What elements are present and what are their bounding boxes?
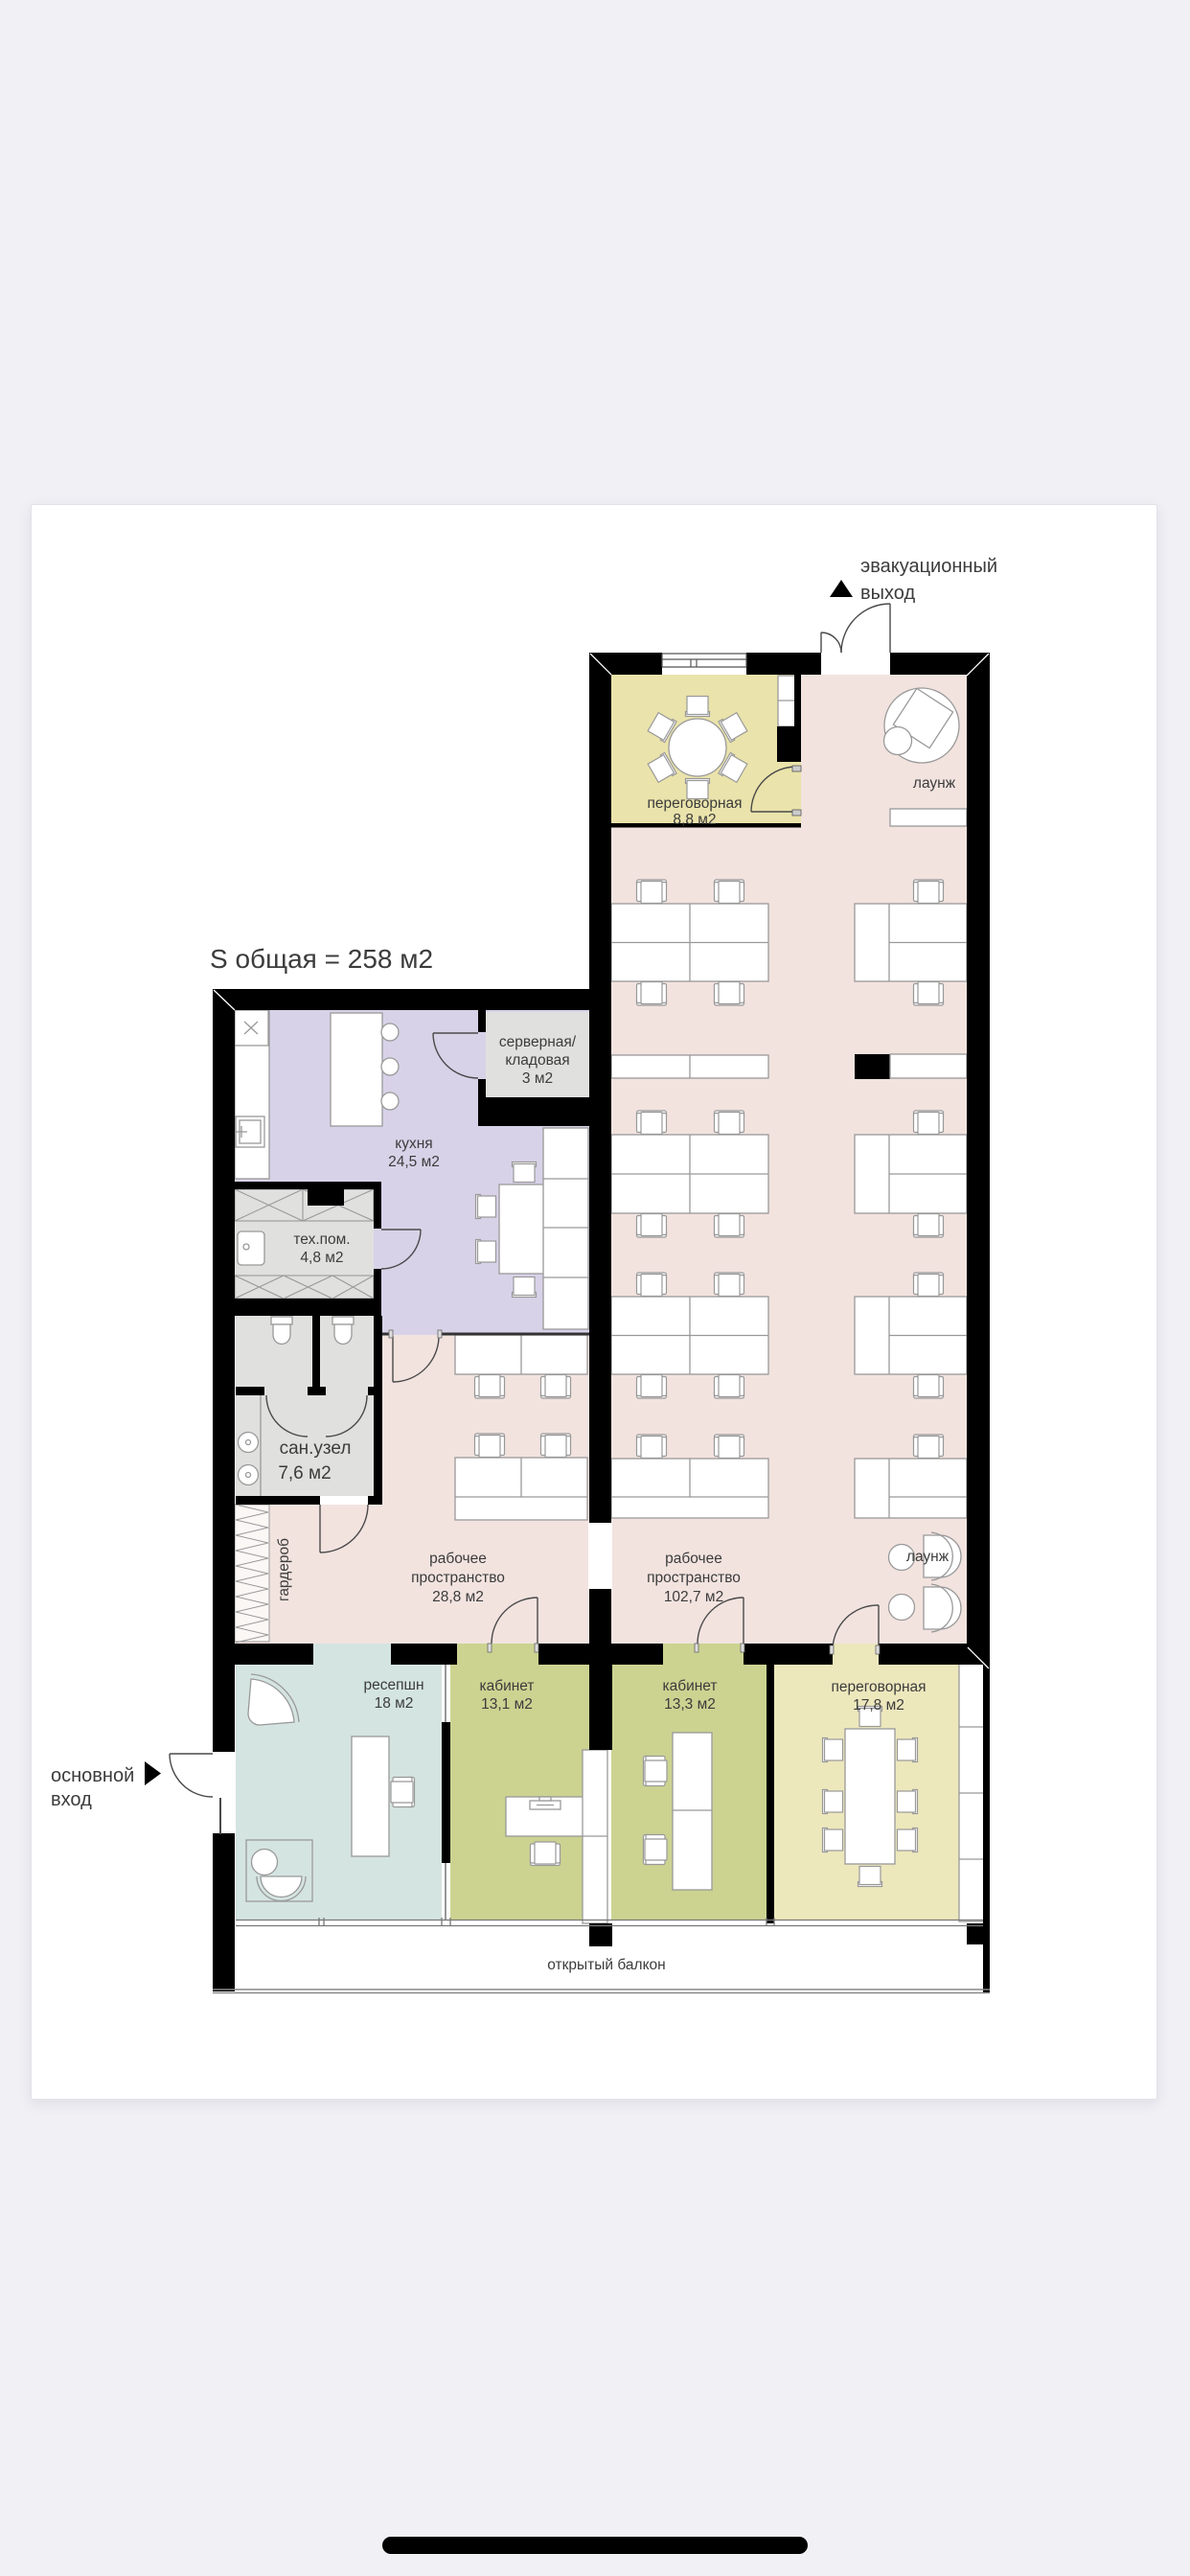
svg-text:сан.узел: сан.узел xyxy=(280,1438,352,1459)
svg-text:24,5 м2: 24,5 м2 xyxy=(388,1154,440,1170)
svg-text:рабочее: рабочее xyxy=(665,1551,722,1567)
svg-text:серверная/: серверная/ xyxy=(499,1034,577,1050)
svg-text:кабинет: кабинет xyxy=(662,1678,717,1694)
svg-text:4,8 м2: 4,8 м2 xyxy=(300,1250,343,1266)
svg-text:гардероб: гардероб xyxy=(276,1538,292,1601)
svg-text:лаунж: лаунж xyxy=(913,775,956,792)
svg-text:кухня: кухня xyxy=(395,1136,432,1152)
svg-text:3 м2: 3 м2 xyxy=(522,1070,553,1087)
svg-text:выход: выход xyxy=(860,583,915,604)
svg-text:открытый балкон: открытый балкон xyxy=(547,1957,665,1973)
svg-text:рабочее: рабочее xyxy=(429,1551,487,1567)
svg-text:102,7 м2: 102,7 м2 xyxy=(664,1589,723,1605)
svg-text:эвакуационный: эвакуационный xyxy=(860,556,997,577)
svg-text:пространство: пространство xyxy=(411,1570,505,1586)
svg-text:переговорная: переговорная xyxy=(647,795,742,812)
svg-text:основной: основной xyxy=(51,1765,134,1786)
svg-text:тех.пом.: тех.пом. xyxy=(293,1231,350,1248)
svg-text:7,6 м2: 7,6 м2 xyxy=(278,1463,331,1483)
svg-text:переговорная: переговорная xyxy=(831,1679,926,1695)
svg-text:кабинет: кабинет xyxy=(479,1678,534,1694)
svg-text:кладовая: кладовая xyxy=(505,1052,569,1069)
svg-text:пространство: пространство xyxy=(647,1570,741,1586)
svg-text:13,3 м2: 13,3 м2 xyxy=(664,1696,716,1713)
svg-text:28,8 м2: 28,8 м2 xyxy=(432,1589,484,1605)
svg-text:17,8 м2: 17,8 м2 xyxy=(853,1697,904,1713)
svg-text:13,1 м2: 13,1 м2 xyxy=(481,1696,533,1713)
svg-text:вход: вход xyxy=(51,1789,92,1810)
svg-text:лаунж: лаунж xyxy=(906,1549,950,1565)
svg-text:18 м2: 18 м2 xyxy=(375,1695,414,1712)
svg-text:S общая = 258 м2: S общая = 258 м2 xyxy=(210,944,433,974)
svg-text:8,8 м2: 8,8 м2 xyxy=(673,812,716,828)
svg-text:ресепшн: ресепшн xyxy=(364,1677,424,1693)
